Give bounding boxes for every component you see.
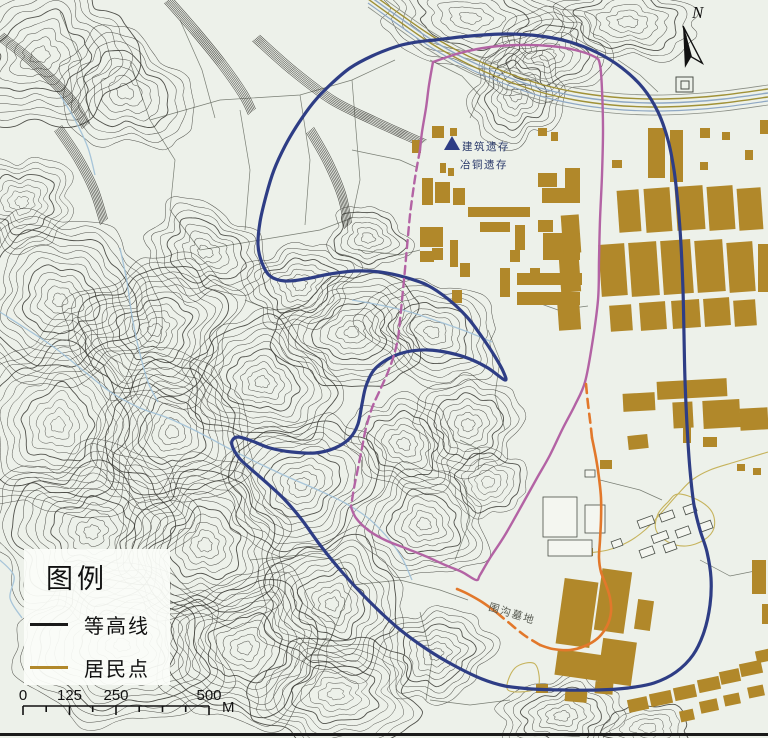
building-footprint	[758, 244, 768, 292]
map-label-0: 建筑遗存	[462, 140, 510, 153]
building-footprint	[538, 173, 557, 187]
building-footprint	[420, 227, 443, 247]
building-footprint	[700, 162, 708, 170]
building-footprint	[657, 378, 728, 400]
map-page: 建筑遗存冶铜遗存围沟墓地 图例 等高线 居民点 0 125	[0, 0, 768, 738]
legend-item-contour: 等高线	[30, 610, 170, 639]
building-footprint	[639, 301, 667, 331]
building-footprint	[753, 468, 761, 475]
legend-panel: 图例 等高线 居民点	[24, 549, 170, 685]
building-footprint	[617, 189, 642, 232]
legend-item-settlement: 居民点	[30, 653, 170, 682]
north-label: N	[691, 3, 705, 22]
north-arrow: N	[662, 0, 722, 86]
settlement-line-swatch	[30, 666, 68, 669]
scale-unit: M	[222, 699, 235, 716]
building-footprint	[440, 163, 446, 173]
building-footprint	[671, 299, 701, 329]
building-footprint	[612, 160, 622, 168]
building-footprint	[722, 132, 730, 140]
building-footprint	[643, 187, 672, 233]
building-footprint	[448, 168, 454, 176]
building-footprint	[480, 222, 510, 232]
building-footprint	[752, 560, 766, 594]
building-footprint	[737, 187, 764, 231]
building-footprint	[660, 239, 694, 295]
building-footprint	[623, 392, 656, 412]
building-footprint	[726, 241, 755, 293]
scale-0: 0	[19, 687, 27, 704]
building-footprint	[598, 243, 628, 297]
legend-title: 图例	[46, 557, 170, 596]
building-footprint	[762, 604, 768, 624]
building-footprint	[627, 434, 648, 450]
building-footprint	[515, 225, 525, 250]
building-footprint	[453, 188, 465, 205]
building-footprint	[565, 168, 580, 203]
building-footprint	[672, 401, 693, 428]
building-footprint	[703, 437, 717, 447]
building-footprint	[702, 399, 740, 429]
building-footprint	[609, 304, 633, 331]
building-footprint	[628, 241, 660, 297]
building-footprint	[700, 128, 710, 138]
building-footprint	[557, 297, 581, 330]
building-footprint	[551, 132, 558, 141]
building-footprint	[435, 182, 450, 203]
building-footprint	[760, 120, 768, 134]
building-footprint	[694, 239, 726, 293]
building-footprint	[460, 263, 470, 277]
building-footprint	[706, 185, 735, 231]
building-footprint	[561, 214, 582, 253]
scale-bar: 0 125 250 500 M	[12, 684, 252, 722]
building-footprint	[739, 407, 768, 430]
scale-bar-ticks	[23, 706, 209, 715]
scale-500: 500	[196, 687, 221, 704]
map-label-1: 冶铜遗存	[460, 158, 508, 171]
building-footprint	[745, 150, 753, 160]
contour-line-swatch	[30, 623, 68, 626]
building-footprint	[597, 638, 637, 686]
building-footprint	[600, 460, 612, 469]
scale-250: 250	[103, 687, 128, 704]
legend-label-contour: 等高线	[84, 610, 150, 639]
building-footprint	[538, 128, 547, 136]
building-outline	[585, 470, 595, 477]
building-outline	[548, 540, 592, 556]
legend-label-settlement: 居民点	[84, 653, 150, 682]
building-outline	[543, 497, 577, 537]
building-footprint	[538, 220, 553, 232]
building-footprint	[500, 268, 510, 297]
scale-bar-labels: 0 125 250 500 M	[19, 687, 235, 716]
building-footprint	[510, 250, 520, 262]
building-footprint	[432, 126, 444, 138]
building-footprint	[422, 178, 433, 205]
building-footprint	[648, 128, 665, 178]
building-footprint	[559, 257, 581, 292]
building-footprint	[468, 207, 530, 217]
scale-125: 125	[57, 687, 82, 704]
building-footprint	[452, 290, 462, 303]
building-footprint	[703, 297, 731, 327]
building-footprint	[420, 251, 434, 262]
building-footprint	[450, 240, 458, 267]
building-footprint	[737, 464, 745, 471]
map-frame-line	[0, 733, 768, 736]
building-footprint	[450, 128, 457, 136]
north-arrow-icon	[674, 24, 702, 68]
building-footprint	[733, 299, 757, 326]
